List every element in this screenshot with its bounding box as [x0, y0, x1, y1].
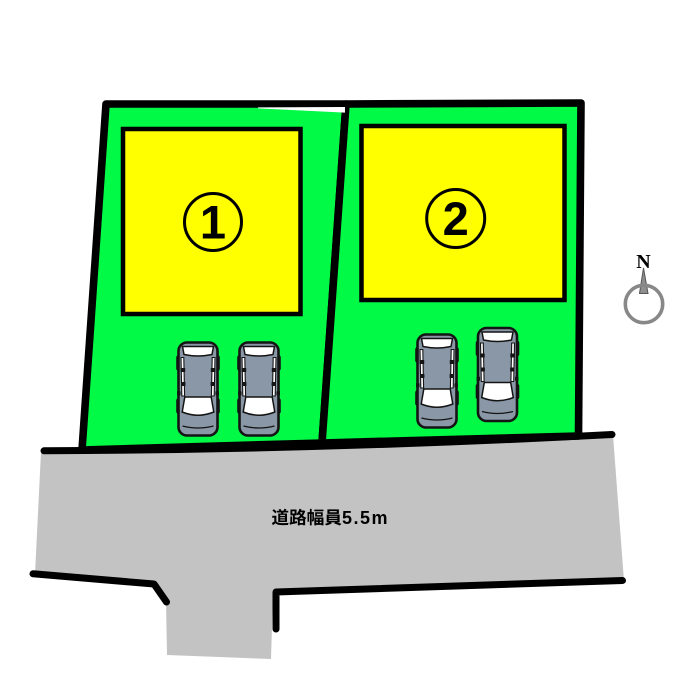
svg-text:2: 2 [443, 192, 469, 245]
svg-text:1: 1 [200, 196, 226, 249]
svg-text:5.5m: 5.5m [342, 508, 389, 528]
